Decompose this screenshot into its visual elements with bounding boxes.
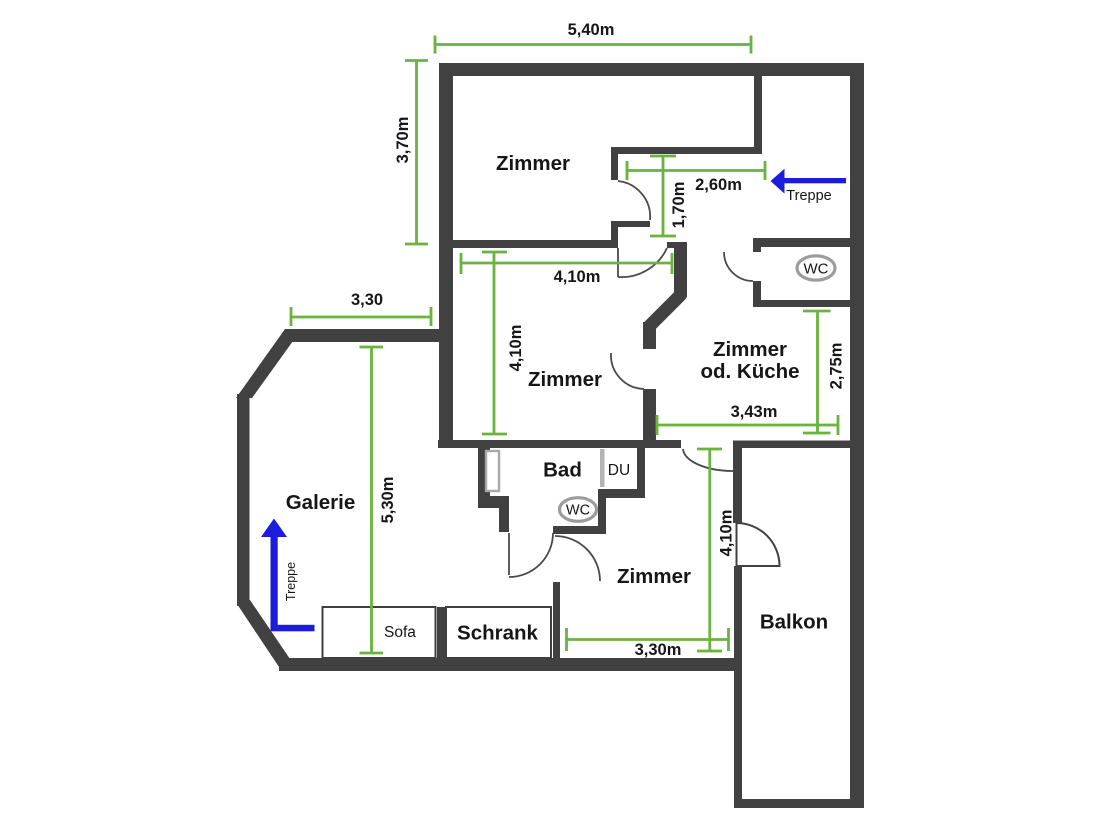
svg-text:3,30: 3,30 [351, 291, 383, 309]
svg-text:2,60m: 2,60m [695, 176, 742, 194]
svg-text:DU: DU [608, 462, 630, 479]
svg-text:Balkon: Balkon [760, 611, 828, 634]
svg-text:Bad: Bad [543, 459, 582, 482]
svg-text:3,43m: 3,43m [731, 403, 778, 421]
svg-text:Sofa: Sofa [384, 624, 416, 641]
svg-text:5,30m: 5,30m [379, 477, 397, 524]
svg-text:Schrank: Schrank [457, 622, 538, 645]
svg-text:4,10m: 4,10m [507, 325, 525, 372]
svg-text:Treppe: Treppe [786, 188, 831, 204]
svg-text:5,40m: 5,40m [568, 21, 615, 39]
svg-text:od. Küche: od. Küche [700, 360, 799, 383]
svg-text:Zimmer: Zimmer [496, 152, 570, 175]
svg-text:1,70m: 1,70m [670, 182, 688, 229]
svg-text:4,10m: 4,10m [718, 510, 736, 557]
svg-text:3,70m: 3,70m [394, 117, 412, 164]
svg-text:Zimmer: Zimmer [528, 368, 602, 391]
svg-text:WC: WC [566, 503, 590, 519]
svg-text:4,10m: 4,10m [554, 268, 601, 286]
svg-text:2,75m: 2,75m [828, 343, 846, 390]
svg-text:Zimmer: Zimmer [713, 338, 787, 361]
svg-text:Zimmer: Zimmer [617, 565, 691, 588]
svg-text:3,30m: 3,30m [635, 641, 682, 659]
svg-text:Galerie: Galerie [286, 491, 356, 514]
svg-text:Treppe: Treppe [284, 562, 298, 601]
svg-text:WC: WC [804, 261, 829, 278]
